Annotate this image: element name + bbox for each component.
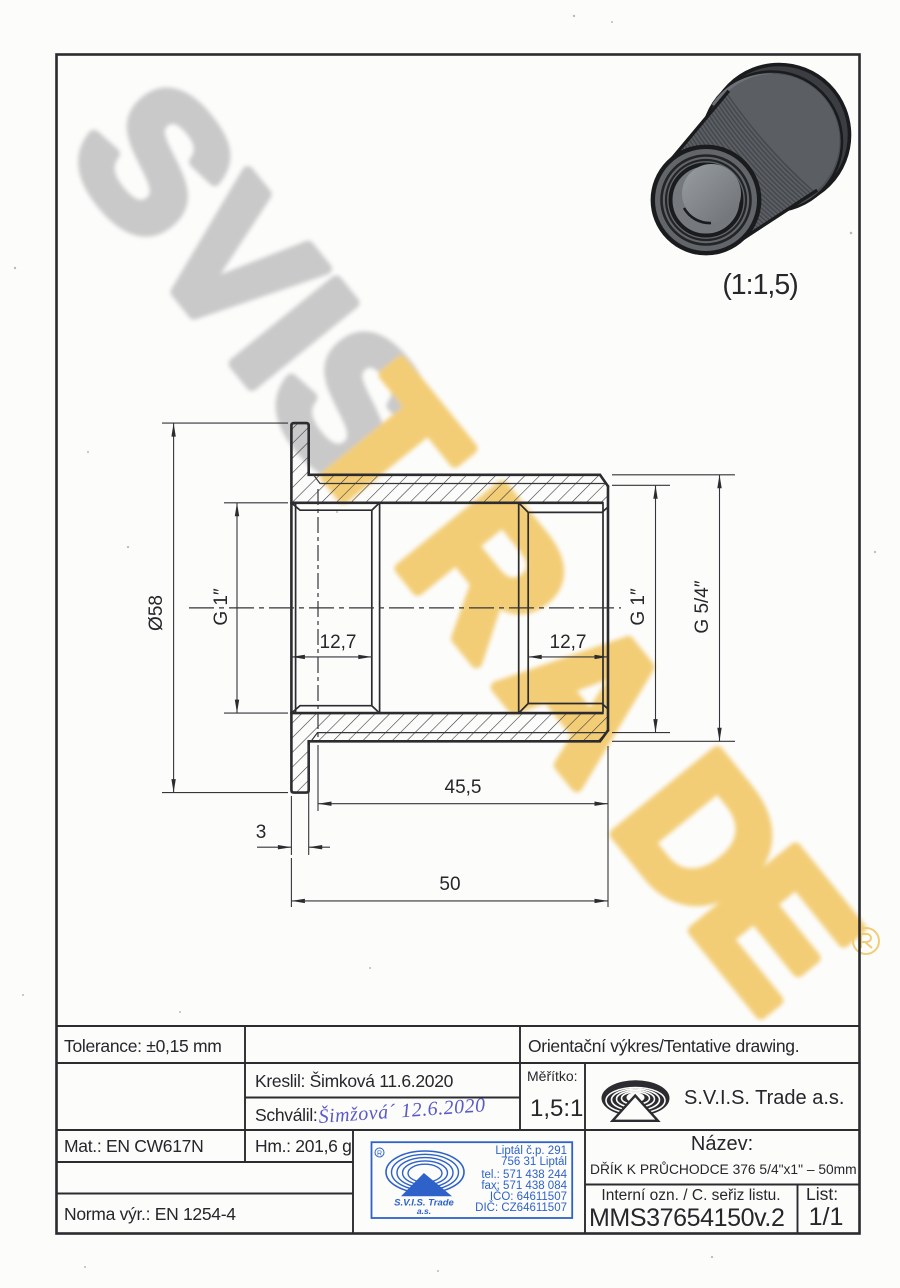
svg-text:MMS37654150v.2: MMS37654150v.2 bbox=[589, 1204, 784, 1232]
svg-text:Tolerance: ±0,15 mm: Tolerance: ±0,15 mm bbox=[64, 1036, 222, 1056]
svg-text:a.s.: a.s. bbox=[417, 1206, 431, 1216]
svg-text:45,5: 45,5 bbox=[445, 777, 482, 798]
svg-text:Norma výr.: EN 1254-4: Norma výr.: EN 1254-4 bbox=[64, 1204, 236, 1224]
svg-text:1/1: 1/1 bbox=[809, 1203, 844, 1231]
svg-text:DŘÍK K PRŮCHODCE 376 5/4"x1" –: DŘÍK K PRŮCHODCE 376 5/4"x1" – 50mm bbox=[590, 1160, 857, 1177]
svg-text:G 5/4″: G 5/4″ bbox=[692, 580, 713, 633]
svg-text:Interní ozn. / C. seřiz listu.: Interní ozn. / C. seřiz listu. bbox=[601, 1187, 780, 1204]
svg-text:Mat.: EN CW617N: Mat.: EN CW617N bbox=[64, 1136, 203, 1156]
svg-text:1,5:1: 1,5:1 bbox=[530, 1095, 583, 1122]
svg-text:R: R bbox=[377, 1151, 382, 1158]
svg-text:Ø58: Ø58 bbox=[146, 595, 167, 631]
svg-text:DIČ: CZ64611507: DIČ: CZ64611507 bbox=[475, 1201, 567, 1214]
svg-text:Hm.: 201,6 g: Hm.: 201,6 g bbox=[255, 1136, 352, 1156]
svg-text:Schválil:: Schválil: bbox=[255, 1105, 317, 1125]
svg-text:S.V.I.S. Trade a.s.: S.V.I.S. Trade a.s. bbox=[684, 1087, 844, 1109]
svg-text:756 31 Liptál: 756 31 Liptál bbox=[501, 1156, 567, 1168]
svg-text:Název:: Název: bbox=[691, 1133, 753, 1155]
svg-text:12,7: 12,7 bbox=[320, 632, 357, 653]
svg-text:Kreslil: Šimková 11.6.2020: Kreslil: Šimková 11.6.2020 bbox=[255, 1070, 454, 1091]
svg-text:G 1″: G 1″ bbox=[211, 588, 232, 626]
svg-text:50: 50 bbox=[439, 874, 460, 895]
svg-text:List:: List: bbox=[806, 1184, 838, 1204]
svg-text:Měřítko:: Měřítko: bbox=[527, 1068, 578, 1084]
svg-text:3: 3 bbox=[256, 822, 267, 843]
svg-text:12,7: 12,7 bbox=[550, 632, 587, 653]
svg-text:Orientační výkres/Tentative dr: Orientační výkres/Tentative drawing. bbox=[528, 1036, 799, 1056]
svg-text:(1:1,5): (1:1,5) bbox=[722, 269, 797, 301]
svg-text:G 1″: G 1″ bbox=[628, 588, 649, 626]
